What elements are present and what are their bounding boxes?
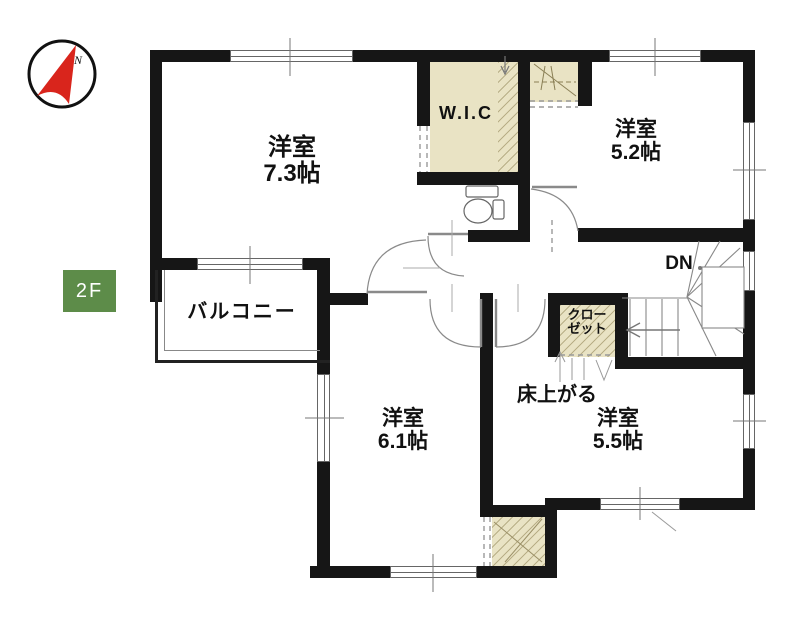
room-name: 洋室 (593, 407, 643, 430)
wall (578, 228, 745, 242)
wall (417, 50, 430, 126)
room-size: 7.3帖 (263, 161, 320, 187)
bottom-closet-area (492, 517, 545, 566)
plan-linework: N (0, 0, 789, 624)
room-name: バルコニー (187, 301, 297, 323)
room-name: 洋室 (263, 135, 320, 161)
window (609, 50, 701, 62)
wall (545, 510, 557, 578)
room-label-wic: W.I.C (439, 104, 493, 124)
svg-text:N: N (73, 53, 83, 67)
room-name: 洋室 (378, 407, 428, 430)
wall (480, 293, 493, 517)
room-label-bedroom73: 洋室 7.3帖 (263, 135, 320, 188)
wall (468, 230, 530, 242)
floor-badge: 2F (63, 270, 116, 312)
room-label-balcony: バルコニー (187, 301, 297, 323)
compass-icon: N (29, 41, 95, 107)
floor-step-label: 床上がる (517, 384, 597, 406)
door-landing (531, 187, 578, 231)
floor-plan-2f: N (0, 0, 789, 624)
window (743, 122, 755, 220)
window (743, 394, 755, 449)
wall (578, 50, 592, 106)
wall (518, 50, 530, 242)
window (230, 50, 353, 62)
stairs-down-arrow-icon (627, 323, 680, 337)
room-size: 5.2帖 (611, 141, 661, 164)
window (390, 566, 477, 578)
attic-storage-area (530, 58, 578, 102)
room-label-bedroom52: 洋室 5.2帖 (611, 118, 661, 164)
door-bedroom61 (430, 299, 481, 347)
room-name: W.I.C (439, 104, 493, 124)
room-label-bedroom55: 洋室 5.5帖 (593, 407, 643, 453)
balcony-door-window (197, 258, 303, 270)
room-name: 洋室 (611, 118, 661, 141)
window (743, 251, 755, 291)
wic-hatch-strip (498, 62, 518, 172)
toilet-icon (464, 186, 504, 223)
wall (417, 172, 530, 185)
wall (615, 357, 755, 369)
room-size: 6.1帖 (378, 430, 428, 453)
room-label-bedroom61: 洋室 6.1帖 (378, 407, 428, 453)
room-label-stair-closet: クロー ゼット (567, 308, 606, 337)
wall (480, 505, 545, 517)
wall (150, 258, 200, 270)
stairs-dn-label: DN (665, 254, 692, 275)
door-bedroom55 (496, 299, 545, 347)
door-bedroom73 (367, 240, 427, 294)
door-toilet (428, 234, 468, 276)
window (600, 498, 680, 510)
window (317, 374, 330, 462)
room-size: 5.5帖 (593, 430, 643, 453)
